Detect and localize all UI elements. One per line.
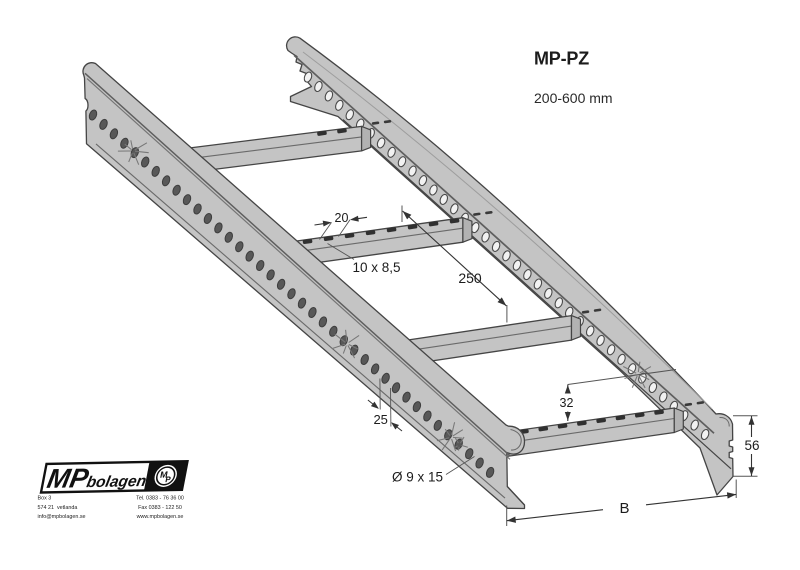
- svg-text:MP-PZ: MP-PZ: [534, 49, 589, 69]
- svg-text:32: 32: [560, 396, 574, 410]
- svg-text:info@mpbolagen.se: info@mpbolagen.se: [38, 514, 86, 520]
- svg-text:B: B: [619, 500, 629, 517]
- svg-text:200-600 mm: 200-600 mm: [534, 90, 613, 106]
- svg-text:10 x 8,5: 10 x 8,5: [353, 260, 401, 275]
- svg-text:Box 3: Box 3: [38, 496, 52, 502]
- svg-text:www.mpbolagen.se: www.mpbolagen.se: [136, 514, 184, 520]
- svg-text:Tel. 0383 - 76 36 00: Tel. 0383 - 76 36 00: [136, 496, 184, 502]
- svg-text:Fax 0383 - 122 50: Fax 0383 - 122 50: [138, 505, 182, 511]
- svg-text:250: 250: [458, 270, 482, 286]
- svg-text:20: 20: [335, 211, 349, 225]
- svg-text:56: 56: [744, 438, 759, 453]
- svg-text:bolagen: bolagen: [85, 473, 148, 491]
- svg-text:Ø 9 x 15: Ø 9 x 15: [392, 470, 443, 485]
- svg-text:574 21 vetlanda: 574 21 vetlanda: [38, 505, 78, 511]
- svg-text:25: 25: [373, 412, 387, 427]
